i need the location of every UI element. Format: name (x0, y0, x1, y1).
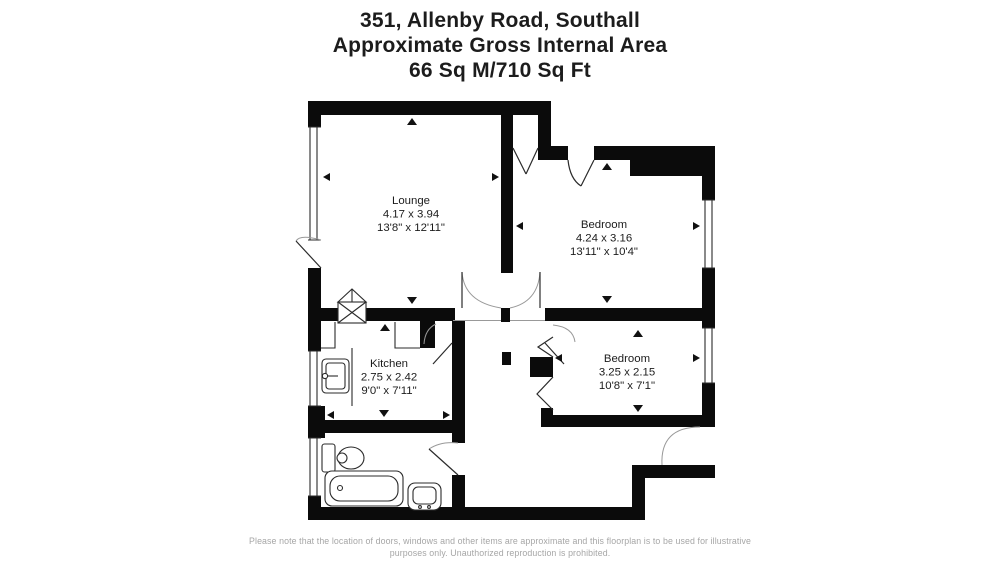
floorplan-page: 351, Allenby Road, Southall Approximate … (0, 0, 1000, 565)
wall-lounge-bedroom1-divider (501, 115, 513, 273)
bedroom1-name: Bedroom (581, 219, 627, 231)
kitchen-window (308, 351, 321, 406)
lounge-hall-door-arc (462, 272, 501, 308)
basin-icon (408, 483, 441, 510)
lounge-arrow-left (323, 173, 330, 181)
wall-entry-band (645, 465, 715, 478)
lounge-dims-imperial: 13'8" x 12'11" (377, 222, 445, 234)
bedroom1-arrow-left (516, 222, 523, 230)
wall-bottom (308, 507, 645, 520)
kitchen-arrow-up (380, 324, 390, 331)
bedroom2-dims-metric: 3.25 x 2.15 (599, 367, 655, 379)
bedroom1-dims-metric: 4.24 x 3.16 (576, 233, 632, 245)
kitchen-arrow-down (379, 410, 389, 417)
entry-door-arc (662, 427, 700, 465)
kitchen-dims-imperial: 9'0" x 7'11" (361, 385, 416, 397)
wall-lounge-top (308, 101, 551, 115)
bedroom1-arrow-up (602, 163, 612, 170)
toilet-icon (322, 444, 364, 472)
bedroom1-arrow-right (693, 222, 700, 230)
bedroom2-arrow-down (633, 405, 643, 412)
bedroom2-door-arc (553, 325, 575, 342)
wall-right-mid (702, 268, 715, 328)
lounge-dims-metric: 4.17 x 3.94 (383, 209, 439, 221)
wall-right-upper (702, 160, 715, 200)
bedroom1-dims-imperial: 13'11" x 10'4" (570, 246, 638, 258)
lounge-arrow-up (407, 118, 417, 125)
flue-icon (338, 289, 366, 323)
wall-lounge-bottom (308, 308, 455, 321)
kitchen-sink-icon (322, 359, 349, 393)
bedroom1-window (702, 200, 715, 268)
walls (308, 101, 715, 520)
bedroom1-top-splay-window (568, 160, 594, 186)
kitchen-arrow-right (443, 411, 450, 419)
wall-bath-stub (452, 433, 465, 443)
wall-hall-mini-stub (502, 352, 511, 365)
wall-bath-right (452, 475, 465, 507)
lounge-arrow-down (407, 297, 417, 304)
bedroom2-dims-imperial: 10'8" x 7'1" (599, 380, 655, 392)
lounge-window (308, 127, 321, 240)
kitchen-dims-metric: 2.75 x 2.42 (361, 372, 417, 384)
wall-center-stub (501, 308, 510, 322)
kitchen-door-leaf (433, 343, 452, 364)
wall-kitchen-bottom (308, 420, 465, 433)
floorplan-drawing: Lounge 4.17 x 3.94 13'8" x 12'11" Bedroo… (0, 0, 1000, 565)
bedroom2-window (702, 328, 715, 383)
bedroom2-arrow-right (693, 354, 700, 362)
bedroom2-name: Bedroom (604, 353, 650, 365)
disclaimer-line2: purposes only. Unauthorized reproduction… (0, 548, 1000, 560)
hall-closet-door-upper (538, 337, 553, 357)
wall-hall-pier (530, 357, 553, 377)
wall-bedroom1-bottom (545, 308, 703, 321)
disclaimer: Please note that the location of doors, … (0, 536, 1000, 559)
lounge-exit-door-leaf (296, 241, 321, 268)
bedroom1-door-arc (510, 272, 540, 308)
bathroom-door-leaf (429, 449, 458, 475)
kitchen-name: Kitchen (370, 358, 408, 370)
wall-kitchen-stub (420, 321, 435, 348)
wall-bedroom2-bottom (541, 415, 715, 427)
bathroom-window (308, 438, 321, 496)
wall-left-c (308, 496, 321, 520)
lounge-arrow-right (492, 173, 499, 181)
lounge-name: Lounge (392, 195, 430, 207)
alcove-splay-window (513, 148, 538, 174)
wall-alcove-column (538, 101, 551, 146)
bedroom1-arrow-down (602, 296, 612, 303)
kitchen-arrow-left (327, 411, 334, 419)
wall-bedroom1-top-a (538, 146, 568, 160)
hall-closet-door-lower (537, 377, 553, 410)
wall-bedroom1-top-b (594, 146, 715, 160)
bathroom-door-arc (429, 443, 458, 449)
bathtub-icon (325, 471, 403, 506)
wall-left-a (308, 101, 321, 127)
bedroom2-arrow-up (633, 330, 643, 337)
disclaimer-line1: Please note that the location of doors, … (0, 536, 1000, 548)
wall-kitchen-right (452, 321, 465, 420)
